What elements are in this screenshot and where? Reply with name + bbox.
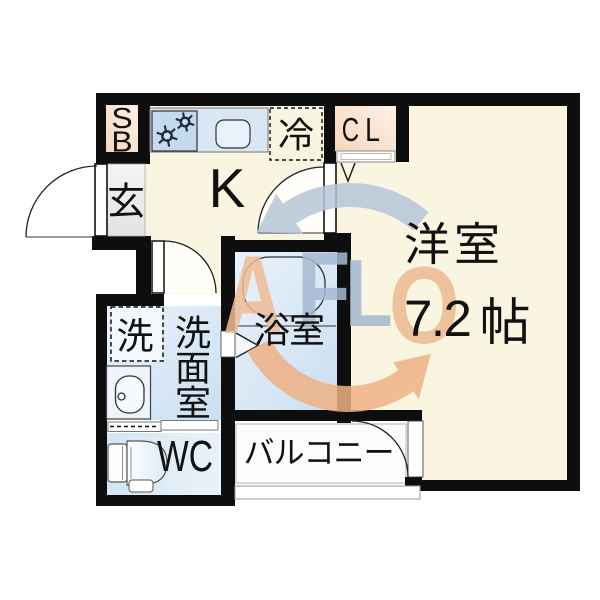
- svg-text:7.2: 7.2: [404, 290, 470, 347]
- svg-text:K: K: [209, 157, 246, 219]
- svg-text:F: F: [297, 229, 351, 351]
- svg-text:B: B: [111, 126, 132, 158]
- svg-text:WC: WC: [157, 432, 213, 481]
- svg-text:L: L: [345, 240, 393, 347]
- svg-text:L: L: [365, 112, 380, 148]
- svg-text:C: C: [342, 112, 359, 149]
- svg-text:A: A: [223, 232, 283, 357]
